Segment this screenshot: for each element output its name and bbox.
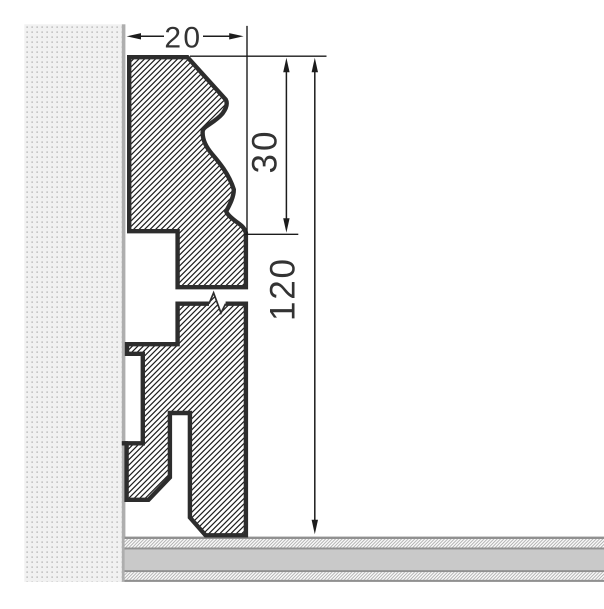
- svg-text:20: 20: [164, 21, 202, 54]
- svg-text:120: 120: [264, 257, 303, 321]
- svg-text:30: 30: [246, 129, 285, 174]
